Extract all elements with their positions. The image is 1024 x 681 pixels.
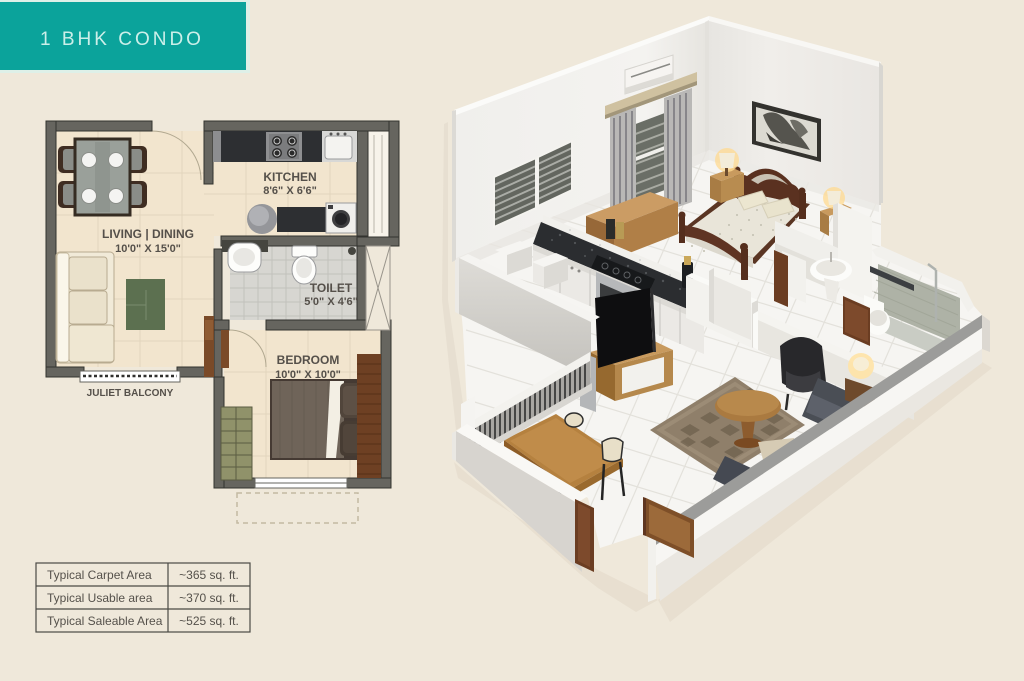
svg-text:5'0" X 4'6": 5'0" X 4'6" [304, 296, 358, 308]
svg-text:~365 sq. ft.: ~365 sq. ft. [179, 568, 239, 582]
svg-text:BEDROOM: BEDROOM [277, 353, 340, 367]
svg-text:Typical Saleable Area: Typical Saleable Area [47, 614, 163, 628]
svg-text:1 BHK CONDO: 1 BHK CONDO [40, 29, 204, 50]
svg-text:KITCHEN: KITCHEN [263, 170, 316, 184]
svg-text:8'6" X 6'6": 8'6" X 6'6" [263, 185, 317, 197]
svg-text:10'0" X 15'0": 10'0" X 15'0" [115, 243, 181, 255]
svg-text:LIVING | DINING: LIVING | DINING [102, 227, 194, 241]
svg-text:Typical Carpet Area: Typical Carpet Area [47, 568, 152, 582]
svg-text:TOILET: TOILET [310, 281, 353, 295]
svg-text:~525 sq. ft.: ~525 sq. ft. [179, 614, 239, 628]
svg-text:Typical Usable area: Typical Usable area [47, 591, 153, 605]
svg-text:10'0" X 10'0": 10'0" X 10'0" [275, 369, 341, 381]
svg-text:JULIET BALCONY: JULIET BALCONY [87, 388, 174, 399]
svg-text:~370 sq. ft.: ~370 sq. ft. [179, 591, 239, 605]
